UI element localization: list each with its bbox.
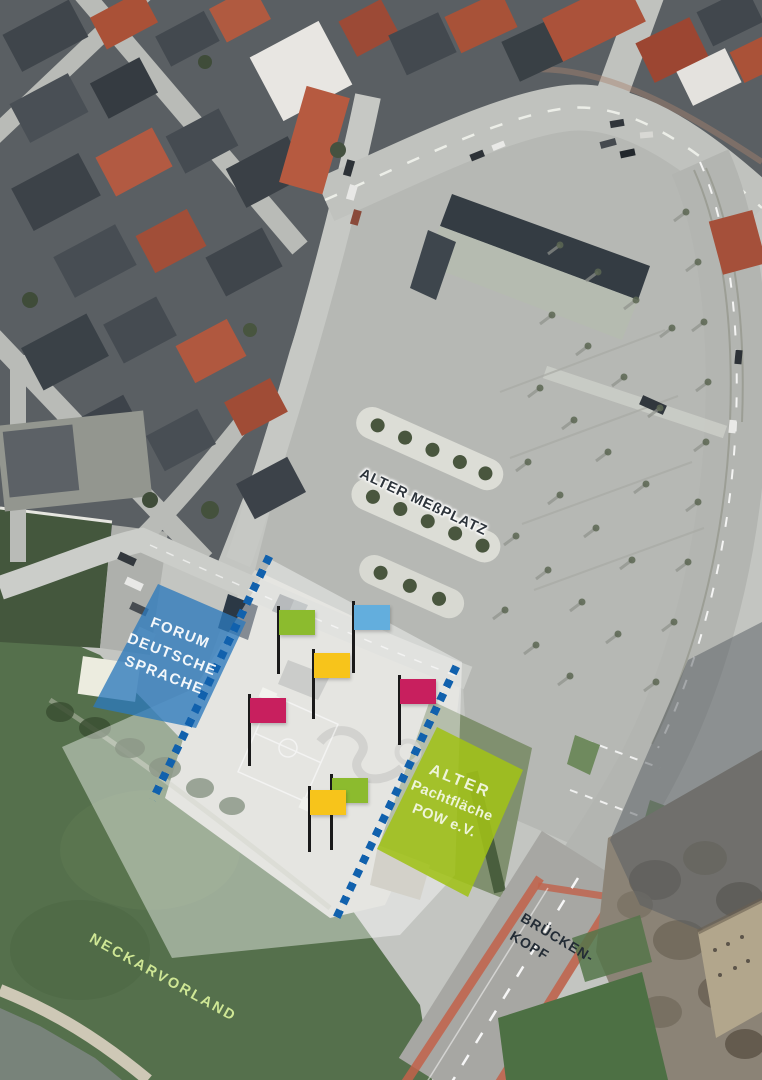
site-plan: ALTER MEßPLATZ FORUM DEUTSCHE SPRACHE AL… xyxy=(0,0,762,1080)
aerial-photo xyxy=(0,0,762,1080)
